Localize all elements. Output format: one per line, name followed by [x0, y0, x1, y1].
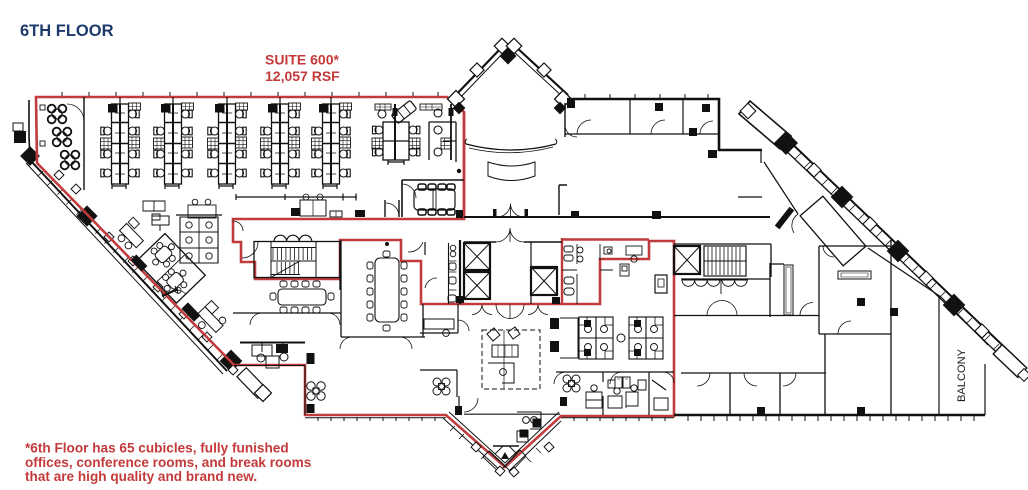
- svg-text:that are high quality and bran: that are high quality and brand new.: [25, 469, 257, 484]
- svg-text:BALCONY: BALCONY: [956, 348, 968, 402]
- svg-text:*6th Floor has 65 cubicles, fu: *6th Floor has 65 cubicles, fully funish…: [25, 441, 289, 456]
- svg-text:6TH FLOOR: 6TH FLOOR: [20, 22, 114, 40]
- svg-text:12,057 RSF: 12,057 RSF: [265, 68, 340, 84]
- svg-text:offices, conference rooms, and: offices, conference rooms, and break roo…: [25, 455, 311, 470]
- svg-text:SUITE 600*: SUITE 600*: [265, 52, 339, 68]
